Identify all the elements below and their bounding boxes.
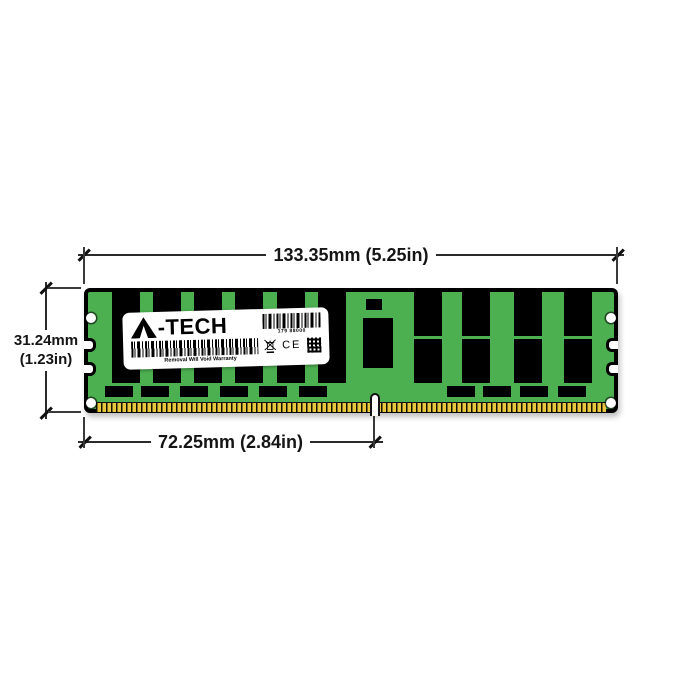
register-chip (363, 318, 393, 368)
small-chip (558, 386, 586, 397)
small-chip (520, 386, 548, 397)
height-dimension: 31.24mm (1.23in) (6, 282, 86, 419)
small-chip (299, 386, 327, 397)
serial-barcode-icon (262, 312, 320, 329)
product-label: -TECH 179 88000 CE Removal Will Void War… (122, 307, 330, 370)
small-chip (141, 386, 169, 397)
dram-chip (414, 292, 442, 336)
small-chip (259, 386, 287, 397)
dram-chip (414, 339, 442, 383)
small-chip (105, 386, 133, 397)
key-notch (370, 393, 380, 416)
pin-span-dimension-label: 72.25mm (2.84in) (151, 432, 310, 453)
edge-notch-right (606, 338, 618, 352)
edge-notch-right (606, 362, 618, 376)
brand-logo: -TECH (130, 315, 227, 339)
dram-chip (564, 339, 592, 383)
small-chip (483, 386, 511, 397)
dram-chip (462, 292, 490, 336)
qr-code-icon (307, 337, 321, 352)
dram-chip (564, 292, 592, 336)
brand-name: -TECH (157, 315, 227, 338)
small-chip (180, 386, 208, 397)
dimension-line (78, 254, 266, 256)
dimension-line (78, 441, 151, 443)
ce-mark: CE (282, 339, 302, 352)
height-dimension-label: 31.24mm (1.23in) (14, 330, 78, 372)
height-mm: 31.24mm (14, 332, 78, 351)
gold-pin-row (96, 402, 606, 412)
product-diagram-canvas: 133.35mm (5.25in) 31.24mm (1.23in) 72.25… (0, 0, 700, 700)
spd-chip (366, 299, 382, 310)
mounting-hole (86, 313, 96, 323)
edge-notch-left (84, 362, 96, 376)
brand-triangle-icon (130, 317, 157, 339)
mounting-hole (86, 398, 96, 408)
dram-chip (462, 339, 490, 383)
small-chip (220, 386, 248, 397)
height-in: (1.23in) (14, 351, 78, 370)
pin-span-dimension: 72.25mm (2.84in) (78, 431, 383, 453)
extension-line (373, 415, 375, 448)
extension-line (616, 247, 618, 284)
dram-chip (514, 292, 542, 336)
dimension-line (436, 254, 624, 256)
edge-notch-left (84, 338, 96, 352)
width-dimension: 133.35mm (5.25in) (78, 244, 624, 266)
weee-bin-icon (264, 338, 276, 353)
mounting-hole (606, 398, 616, 408)
extension-line (48, 287, 81, 289)
serial-block: 179 88000 (262, 312, 321, 335)
serial-number: 179 88000 (263, 327, 321, 335)
extension-line (83, 247, 85, 284)
width-dimension-label: 133.35mm (5.25in) (266, 245, 435, 266)
small-chip (447, 386, 475, 397)
extension-line (48, 411, 81, 413)
mounting-hole (606, 313, 616, 323)
dram-chip (514, 339, 542, 383)
extension-line (83, 417, 85, 448)
